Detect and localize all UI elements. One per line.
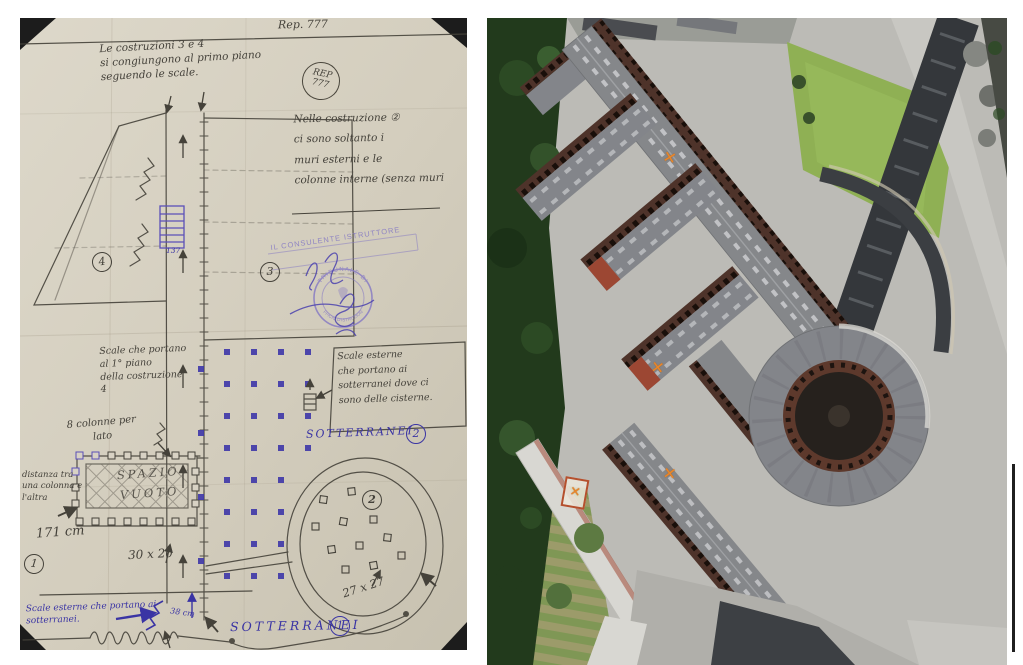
label-empty-space: SPAZIO VUOTO [103,461,196,506]
dim-colonnade-column: 30 x 20 [128,545,174,564]
tree [546,583,572,609]
stair-count: 137 [166,246,180,256]
note-stairs-first-floor: Scale che portano al 1° piano della cost… [99,342,213,397]
plan-photo: TRIBUNALE DI UFFICIO D'ISTRUZIONE Rep. 7… [20,18,467,650]
aerial-photo: ✕ ✕ ✕ ✕ [487,18,1007,665]
round-building [749,326,929,506]
note-column-distance: distanza tra una colonna e l'altra [22,470,94,504]
orange-x-marker: ✕ [662,463,678,484]
sotterranei-lower-number: 1 [330,616,350,636]
orange-x-marker: ✕ [650,357,666,378]
aerial-art [487,18,1007,665]
building-number-3: 3 [260,262,280,282]
note-constructions-3-4: Le costruzioni 3 e 4 si congiungono al p… [99,34,262,85]
ref-number: Rep. 777 [278,18,328,33]
column-distance-value: 171 cm [35,522,85,543]
note-building-2: Nelle costruzione ② ci sono soltanto i m… [293,107,452,192]
orange-x-marker-boxed: ✕ [561,476,590,510]
note-cisterns: Scale esterne che portano ai sotterranei… [337,346,465,409]
oval-interior-number: 2 [362,490,382,510]
scrollbar-fragment[interactable] [1012,464,1015,652]
note-basement-stairs: Scale esterne che portano ai sotterranei… [26,600,161,628]
sotterranei-upper-number: 2 [406,424,426,444]
tree [574,523,604,553]
